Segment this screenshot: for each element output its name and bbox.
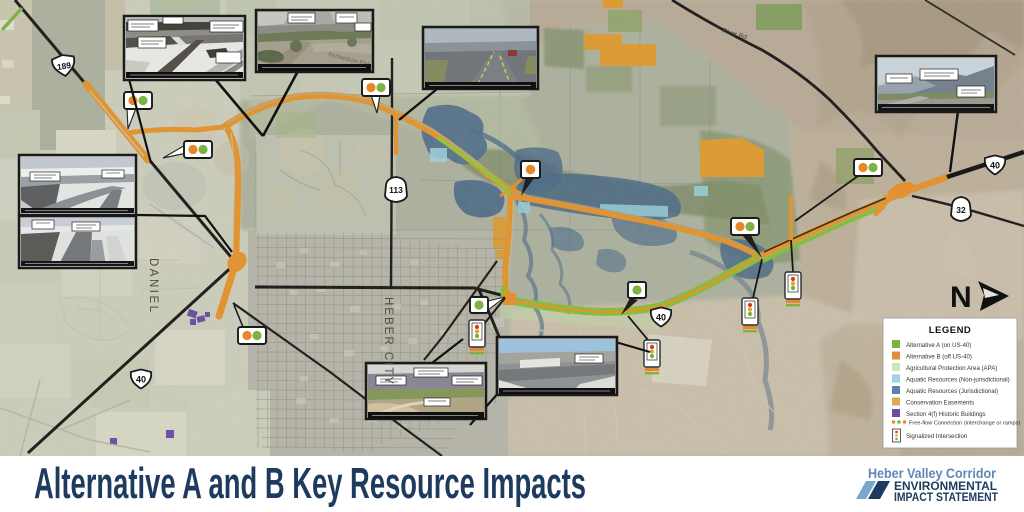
svg-text:LEGEND: LEGEND [929,325,972,336]
svg-text:40: 40 [990,161,1000,171]
svg-text:Conservation Easements: Conservation Easements [906,400,974,407]
svg-text:Signalized Intersection: Signalized Intersection [906,433,967,440]
svg-text:Alternative B (off US-40): Alternative B (off US-40) [906,354,972,361]
svg-text:Section 4(f) Historic Building: Section 4(f) Historic Buildings [906,411,986,418]
svg-text:Aquatic Resources (Jurisdictio: Aquatic Resources (Jurisdictional) [906,388,998,395]
svg-text:40: 40 [656,313,666,323]
svg-text:113: 113 [389,185,403,195]
svg-text:N: N [950,281,972,314]
svg-text:32: 32 [956,205,966,215]
svg-text:Free-flow Connection (intercha: Free-flow Connection (interchange or ram… [909,421,1020,427]
svg-text:Alternative A and B Key Resour: Alternative A and B Key Resource Impacts [34,459,586,508]
svg-text:IMPACT STATEMENT: IMPACT STATEMENT [894,492,998,504]
svg-text:DANIEL: DANIEL [147,258,159,315]
svg-text:HEBER CITY: HEBER CITY [382,297,394,386]
svg-text:Aquatic Resources (Non-jurisdi: Aquatic Resources (Non-jurisdictional) [906,377,1010,384]
svg-text:Heber Valley Corridor: Heber Valley Corridor [868,465,996,481]
svg-text:Agricultural Protection Area (: Agricultural Protection Area (APA) [906,365,997,372]
svg-text:Alternative A (on US-40): Alternative A (on US-40) [906,342,971,349]
svg-text:40: 40 [136,375,146,385]
